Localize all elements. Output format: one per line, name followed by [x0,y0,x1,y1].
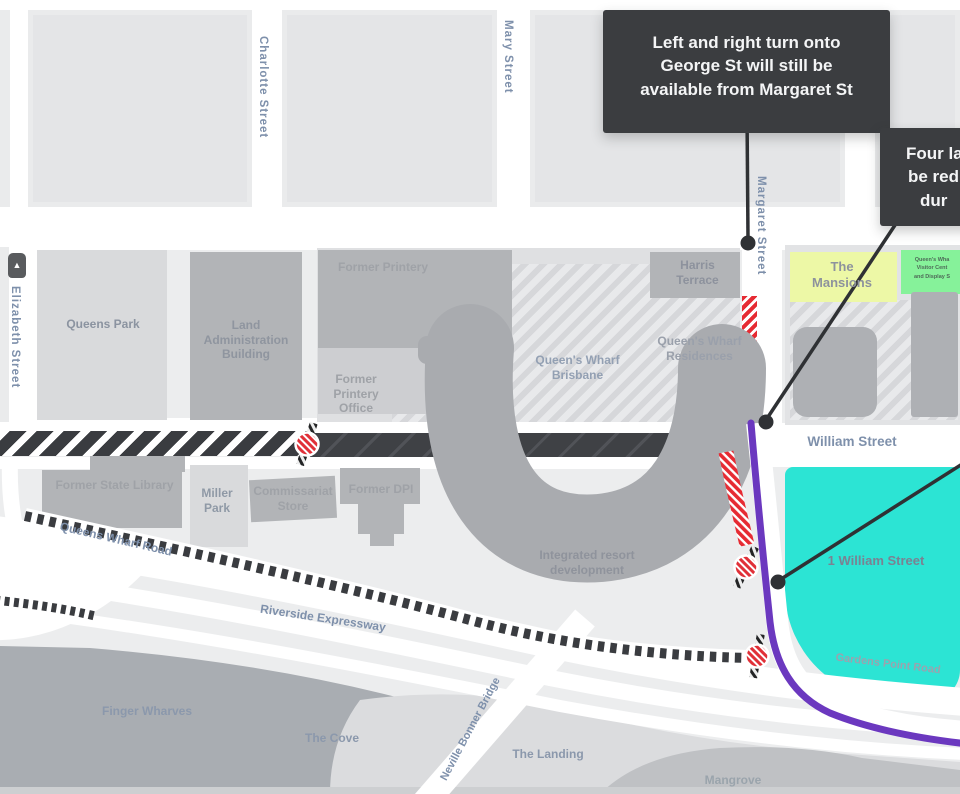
callout-line: available from Margaret St [603,78,890,101]
label-one-william-street: 1 William Street [812,553,940,569]
label-queens-wharf-residences: Queen's Wharf Residences [652,334,747,363]
callout-line: Four la [906,142,960,165]
label-former-dpi: Former DPI [340,482,422,497]
label-finger-wharves: Finger Wharves [82,704,212,719]
visitor-line: Queen's Wha [903,256,960,264]
street-label-elizabeth: Elizabeth Street [8,286,22,388]
traffic-change-map: Charlotte Street Mary Street Elizabeth S… [0,0,960,794]
no-entry-icon [733,545,759,588]
label-land-administration: Land Administration Building [188,318,304,362]
label-mangrove: Mangrove [688,773,778,788]
label-queens-park: Queens Park [66,317,140,332]
label-the-mansions: The Mansions [800,259,884,291]
blob-nub [418,336,458,364]
label-former-printery: Former Printery [325,260,441,275]
callout-leader-four-lanes [759,210,905,429]
street-label-mary: Mary Street [501,20,515,94]
label-commissariat-store: Commissariat Store [246,484,340,513]
label-the-landing: The Landing [498,747,598,762]
street-label-charlotte: Charlotte Street [256,36,270,138]
label-integrated-resort: Integrated resort development [508,548,666,577]
shore-strip [0,787,960,794]
street-label-margaret: Margaret Street [754,176,768,275]
visitor-line: Visitor Cent [903,264,960,272]
label-queens-wharf-brisbane: Queen's Wharf Brisbane [515,353,640,382]
visitor-line: and Display S [903,273,960,281]
street-label-william: William Street [772,434,932,450]
label-visitor-centre: Queen's Wha Visitor Cent and Display S [903,256,960,281]
callout-line: be red [906,165,960,188]
callout-line: George St will still be [603,54,890,77]
label-former-printery-office: Former Printery Office [322,372,390,416]
callout-margaret-turns: Left and right turn onto George St will … [603,10,890,133]
label-harris-terrace: Harris Terrace [660,258,735,287]
no-entry-icon [296,422,319,466]
one-way-badge-icon: ▲ [8,253,26,278]
callout-line: dur [906,189,960,212]
label-miller-park: Miller Park [193,486,241,515]
label-former-state-library: Former State Library [52,478,177,493]
callout-line: Left and right turn onto [603,31,890,54]
label-the-cove: The Cove [292,731,372,746]
callout-four-lanes: Four la be red dur [880,128,960,226]
